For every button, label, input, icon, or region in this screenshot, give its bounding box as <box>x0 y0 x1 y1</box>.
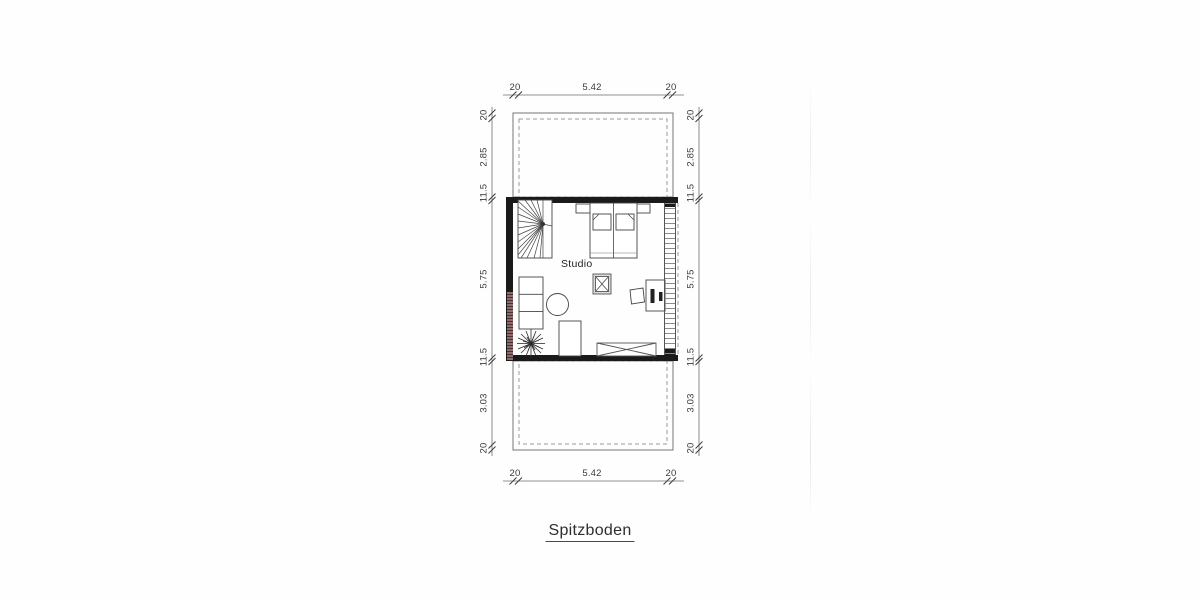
room-label: Studio <box>561 258 593 270</box>
upper-attic-area <box>513 113 673 197</box>
dim-right-0: 20 <box>686 110 697 121</box>
dim-left-6: 20 <box>479 443 490 454</box>
dim-right-2: 11.5 <box>686 184 697 203</box>
dim-top-2: 20 <box>666 82 677 93</box>
chimney-shaft <box>593 274 611 294</box>
lower-attic-area <box>513 361 673 450</box>
spiral-staircase <box>518 200 552 258</box>
pillow-left <box>593 214 611 230</box>
dim-top-0: 20 <box>510 82 521 93</box>
glazing-band <box>664 203 676 355</box>
storage-chest <box>597 343 656 356</box>
dim-left-2: 11.5 <box>479 184 490 203</box>
dim-left-0: 20 <box>479 110 490 121</box>
dim-right-1: 2.85 <box>686 147 697 166</box>
dim-left-1: 2.85 <box>479 147 490 166</box>
desk-chair <box>630 288 645 304</box>
dim-bottom-0: 20 <box>510 468 521 479</box>
plan-title: Spitzboden <box>545 522 634 542</box>
wardrobe-shelf <box>519 277 543 329</box>
desk-keyboard <box>659 292 663 301</box>
desk-monitor <box>651 289 655 303</box>
double-bed <box>576 203 650 258</box>
dim-bottom-2: 20 <box>666 468 677 479</box>
bench <box>559 321 581 356</box>
dim-right-3: 5.75 <box>686 269 697 288</box>
dim-left-4: 11.5 <box>479 348 490 367</box>
plant <box>517 329 545 358</box>
round-table <box>547 294 569 316</box>
dim-top-1: 5.42 <box>582 82 601 93</box>
dim-left-5: 3.03 <box>479 393 490 412</box>
floorplan-page: 20 5.42 20 20 5.42 20 20 2.85 11.5 5.75 … <box>0 0 1200 600</box>
dim-right-4: 11.5 <box>686 348 697 367</box>
watermark-strip <box>507 292 513 360</box>
dim-right-5: 3.03 <box>686 393 697 412</box>
pillow-right <box>616 214 634 230</box>
dim-bottom-1: 5.42 <box>582 468 601 479</box>
scan-crease-line <box>810 80 811 520</box>
desk <box>646 280 665 311</box>
dim-right-6: 20 <box>686 443 697 454</box>
dim-left-3: 5.75 <box>479 269 490 288</box>
